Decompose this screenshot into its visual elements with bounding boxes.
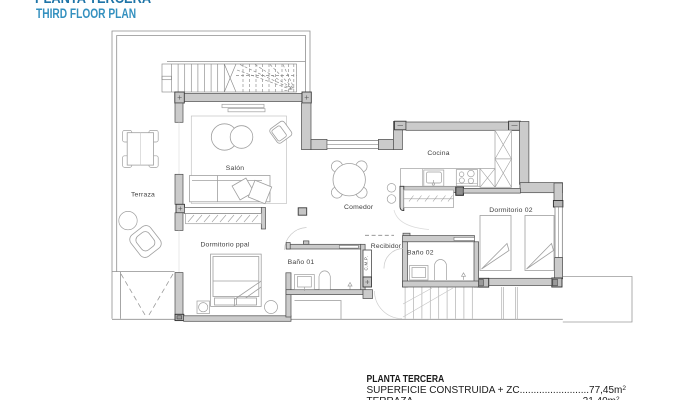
- svg-text:PLANTA TERCERA: PLANTA TERCERA: [366, 373, 444, 384]
- svg-text:Cocina: Cocina: [427, 150, 449, 157]
- svg-text:Baño 02: Baño 02: [407, 249, 434, 256]
- svg-text:Baño 01: Baño 01: [288, 259, 315, 266]
- svg-text:SUPERFICIE CONSTRUIDA + ZC....: SUPERFICIE CONSTRUIDA + ZC..............…: [367, 385, 627, 396]
- svg-text:C.M.P.: C.M.P.: [363, 256, 368, 271]
- svg-text:Salón: Salón: [226, 165, 244, 172]
- svg-text:Comedor: Comedor: [344, 204, 374, 211]
- svg-text:TERRAZA.......................: TERRAZA.................................…: [367, 396, 621, 400]
- svg-text:Terraza: Terraza: [131, 191, 155, 198]
- svg-text:Recibidor: Recibidor: [371, 243, 402, 250]
- svg-text:Dormitorio 02: Dormitorio 02: [489, 207, 532, 214]
- svg-text:Dormitorio ppal: Dormitorio ppal: [200, 242, 249, 249]
